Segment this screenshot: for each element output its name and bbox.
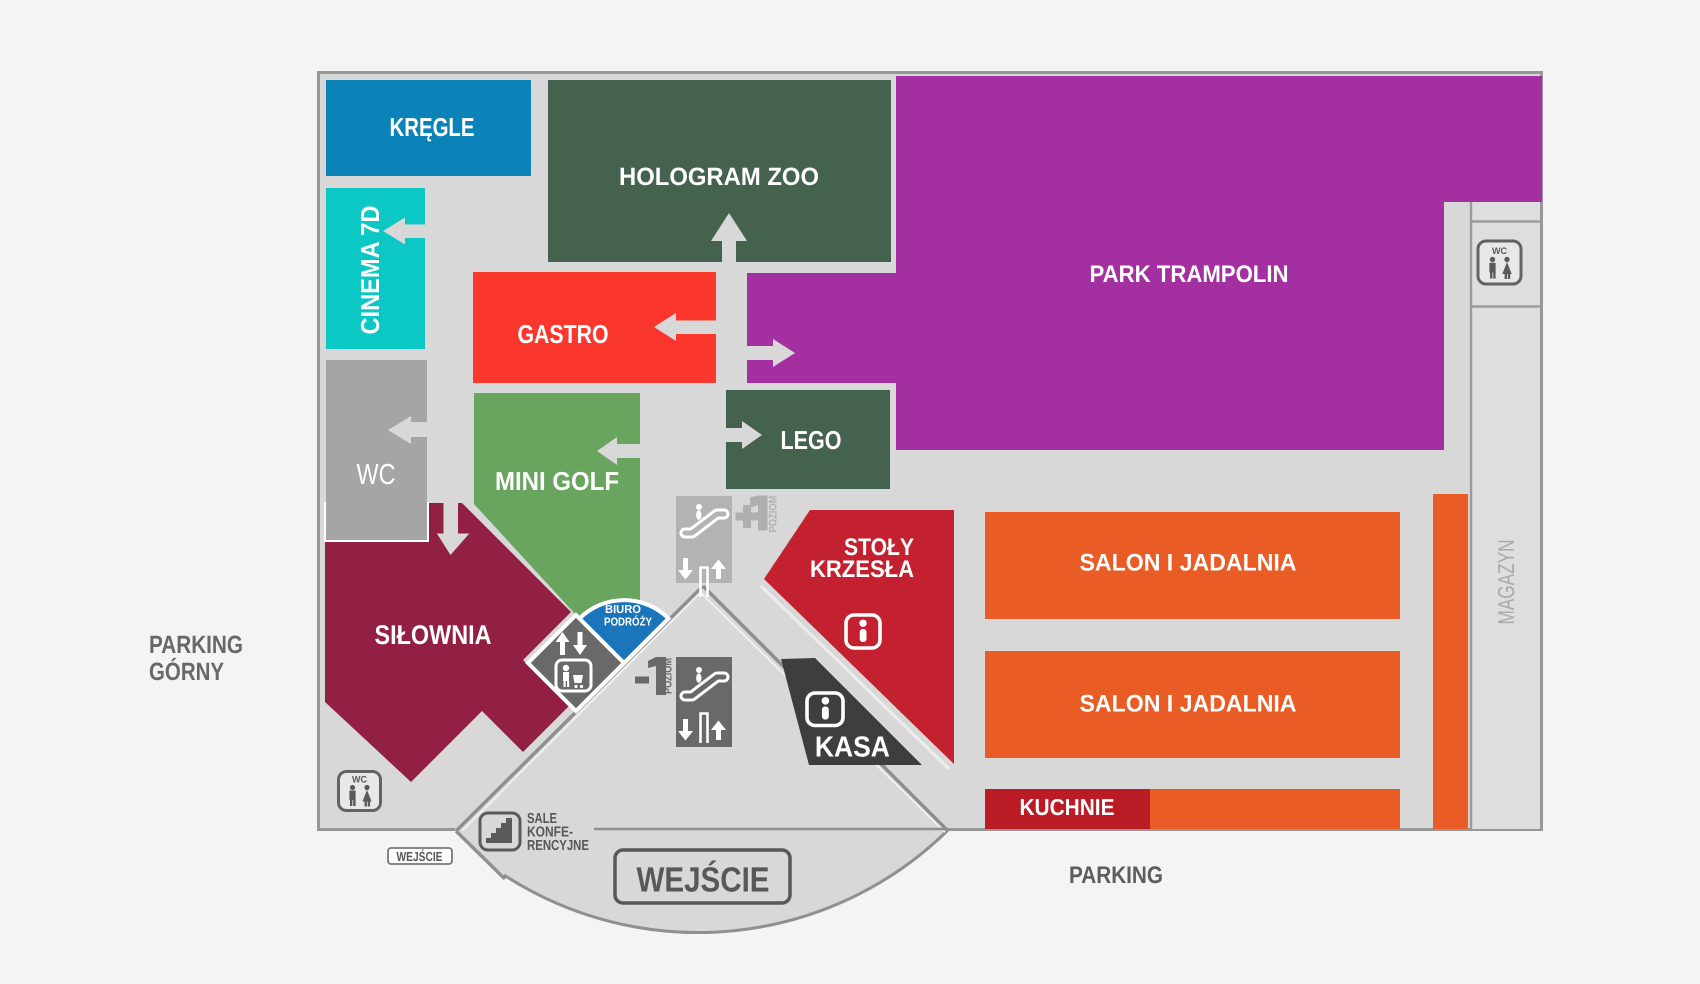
svg-text:GASTRO: GASTRO	[518, 319, 609, 349]
svg-text:WEJŚCIE: WEJŚCIE	[397, 849, 443, 864]
svg-text:POZIOM: POZIOM	[768, 496, 780, 533]
svg-text:KRZESŁA: KRZESŁA	[810, 556, 914, 583]
svg-text:CINEMA 7D: CINEMA 7D	[355, 206, 385, 335]
svg-text:MAGAZYN: MAGAZYN	[1493, 540, 1519, 625]
svg-text:MINI GOLF: MINI GOLF	[495, 466, 619, 496]
svg-text:PARKING: PARKING	[1069, 862, 1163, 889]
svg-text:LEGO: LEGO	[781, 425, 842, 455]
svg-text:KUCHNIE: KUCHNIE	[1020, 794, 1115, 820]
svg-text:KASA: KASA	[815, 732, 890, 764]
svg-text:WEJŚCIE: WEJŚCIE	[637, 860, 770, 900]
svg-text:KRĘGLE: KRĘGLE	[390, 112, 475, 142]
svg-text:PARKING: PARKING	[149, 631, 243, 659]
svg-text:POZIOM: POZIOM	[663, 658, 675, 694]
svg-text:PARK TRAMPOLIN: PARK TRAMPOLIN	[1090, 261, 1289, 288]
svg-text:SALON I JADALNIA: SALON I JADALNIA	[1080, 691, 1297, 718]
svg-text:SIŁOWNIA: SIŁOWNIA	[375, 620, 492, 650]
svg-text:GÓRNY: GÓRNY	[149, 657, 224, 686]
svg-text:WC: WC	[352, 775, 367, 786]
svg-text:PODRÓŻY: PODRÓŻY	[604, 615, 652, 629]
svg-text:SALON I JADALNIA: SALON I JADALNIA	[1080, 550, 1297, 577]
svg-text:WC: WC	[1492, 246, 1507, 257]
svg-text:RENCYJNE: RENCYJNE	[527, 838, 589, 854]
svg-text:HOLOGRAM ZOO: HOLOGRAM ZOO	[619, 163, 819, 191]
svg-text:WC: WC	[357, 459, 396, 491]
svg-text:BIURO: BIURO	[605, 604, 641, 616]
